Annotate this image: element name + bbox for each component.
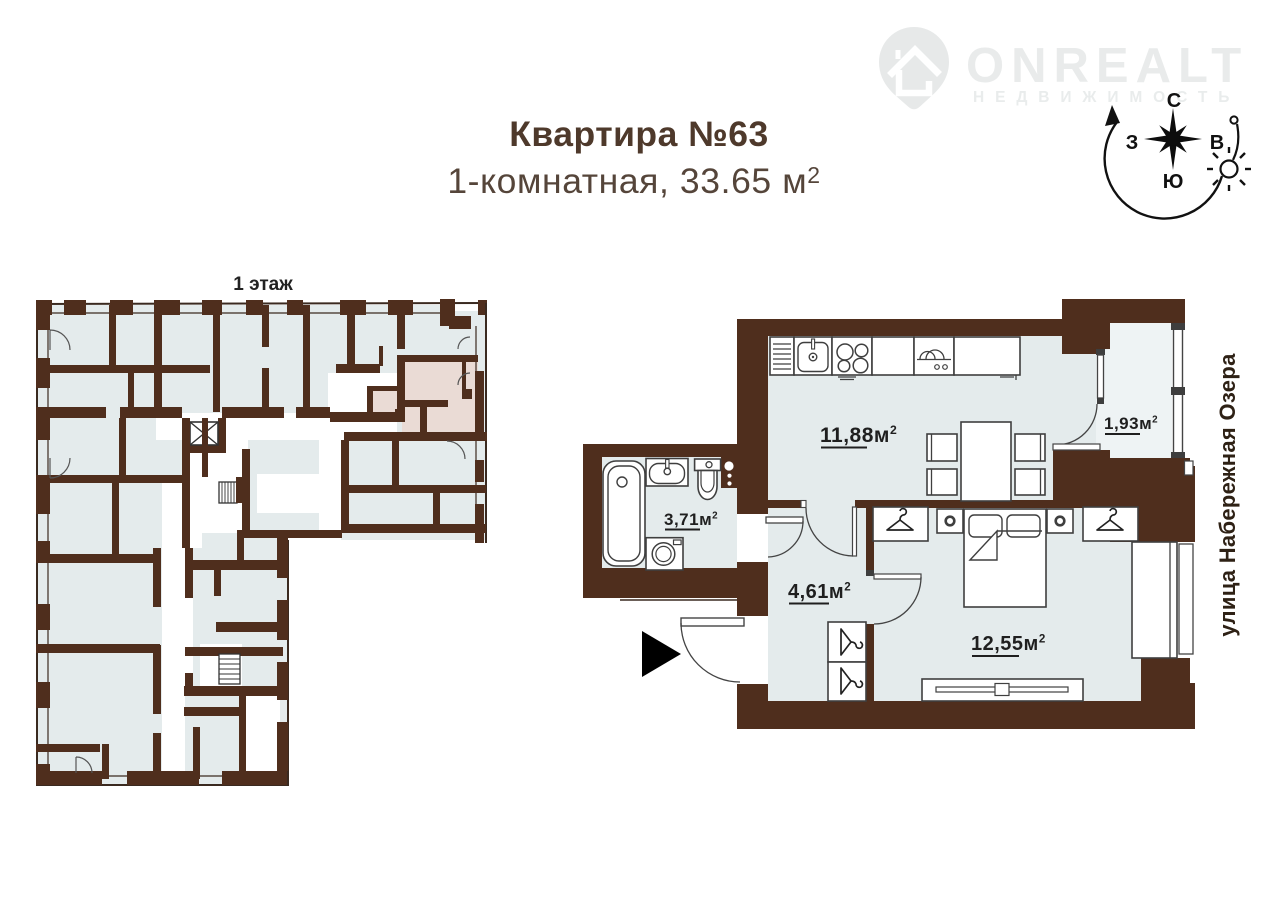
svg-text:12,55м2: 12,55м2 (971, 632, 1046, 655)
svg-text:4,61м2: 4,61м2 (788, 580, 851, 603)
svg-text:З: З (1126, 132, 1139, 154)
svg-text:ONREALT: ONREALT (966, 39, 1248, 93)
svg-text:1,93м2: 1,93м2 (1104, 414, 1158, 433)
svg-text:В: В (1210, 132, 1224, 154)
svg-text:Квартира №63: Квартира №63 (509, 114, 769, 154)
svg-text:С: С (1167, 90, 1181, 112)
svg-text:1-комнатная, 33.65 м2: 1-комнатная, 33.65 м2 (447, 161, 820, 201)
svg-text:улица Набережная Озера: улица Набережная Озера (1215, 353, 1240, 637)
svg-text:1 этаж: 1 этаж (233, 274, 293, 295)
svg-text:НЕДВИЖИМОСТЬ: НЕДВИЖИМОСТЬ (973, 89, 1240, 106)
svg-text:11,88м2: 11,88м2 (820, 423, 897, 447)
svg-text:Ю: Ю (1163, 171, 1184, 193)
svg-text:3,71м2: 3,71м2 (664, 510, 718, 529)
